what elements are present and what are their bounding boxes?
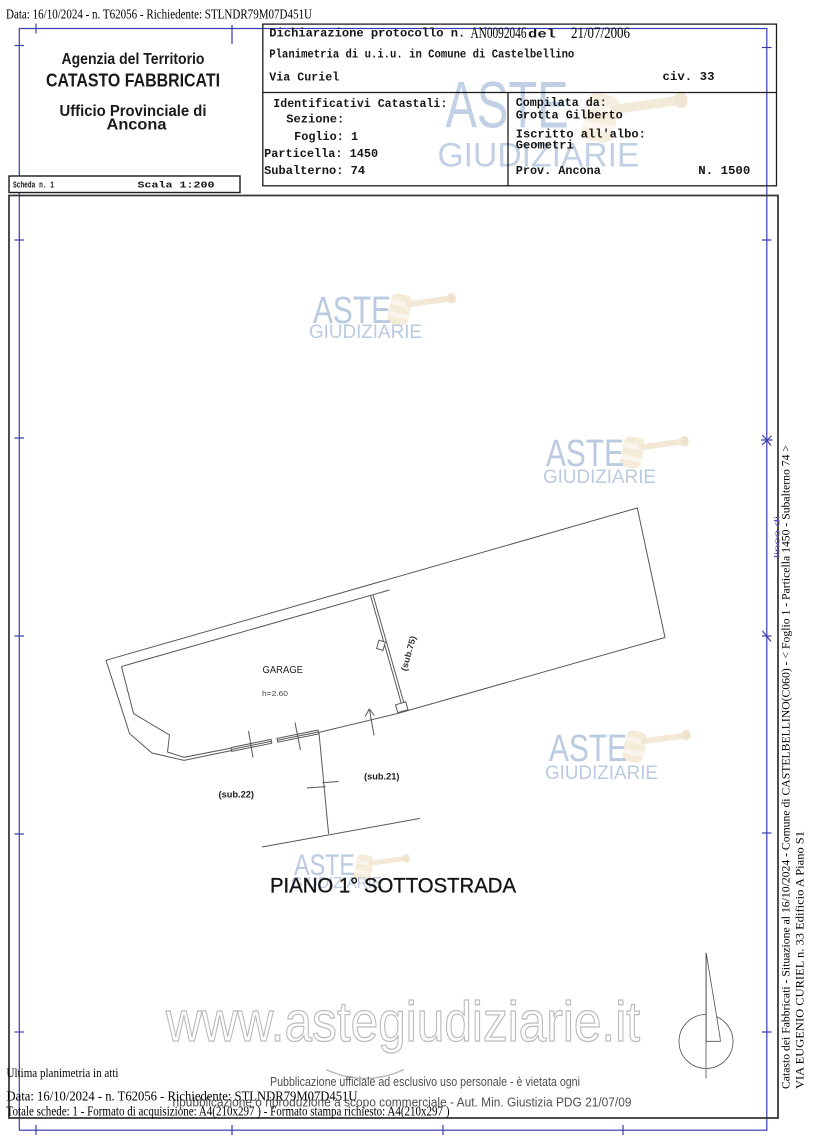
svg-text:Data: 16/10/2024 - n. T62056 -: Data: 16/10/2024 - n. T62056 - Richieden… [6,7,312,22]
svg-text:Identificativi Catastali:: Identificativi Catastali: [273,97,447,111]
svg-text:Pubblicazione ufficiale ad esc: Pubblicazione ufficiale ad esclusivo uso… [270,1075,580,1089]
svg-text:GIUDIZIARIE: GIUDIZIARIE [545,762,658,784]
svg-text:N. 1500: N. 1500 [698,164,750,178]
svg-text:GIUDIZIARIE: GIUDIZIARIE [438,137,640,175]
svg-text:h=2.60: h=2.60 [262,689,288,698]
svg-text:Scala 1:200: Scala 1:200 [138,180,215,191]
svg-text:ASTE: ASTE [446,68,569,142]
svg-text:del: del [528,28,556,42]
svg-text:Via Curiel: Via Curiel [269,71,339,85]
svg-text:Data: 16/10/2024 - n. T62056 -: Data: 16/10/2024 - n. T62056 - Richieden… [7,1090,358,1105]
svg-text:VIA EUGENIO CURIEL n. 33 Edif: VIA EUGENIO CURIEL n. 33 Edificio A Pian… [793,831,807,1089]
svg-text:CATASTO FABBRICATI: CATASTO FABBRICATI [46,70,220,91]
svg-text:Subalterno: 74: Subalterno: 74 [264,164,365,178]
svg-text:Ancona: Ancona [107,117,167,134]
svg-text:21/07/2006: 21/07/2006 [571,25,630,42]
svg-text:Particella: 1450: Particella: 1450 [264,147,378,161]
svg-text:GIUDIZIARIE: GIUDIZIARIE [543,466,656,488]
svg-text:PIANO 1° SOTTOSTRADA: PIANO 1° SOTTOSTRADA [270,875,516,898]
svg-text:(sub.21): (sub.21) [364,771,400,781]
svg-text:Totale schede: 1 - Formato di: Totale schede: 1 - Formato di acquisizio… [7,1104,450,1119]
svg-text:Foglio: 1: Foglio: 1 [294,130,358,144]
svg-text:civ. 33: civ. 33 [663,70,715,84]
svg-text:Planimetria di u.i.u. in Comun: Planimetria di u.i.u. in Comune di Caste… [269,48,574,62]
svg-text:lineo di: lineo di [775,515,782,558]
svg-text:AN0092046: AN0092046 [471,25,527,42]
svg-text:Ultima planimetria in atti: Ultima planimetria in atti [7,1066,119,1080]
svg-text:(sub.22): (sub.22) [219,789,255,799]
svg-text:GARAGE: GARAGE [263,665,304,676]
svg-text:Scheda n. 1: Scheda n. 1 [13,180,54,191]
svg-text:www.astegiudiziarie.it: www.astegiudiziarie.it [165,990,640,1054]
svg-text:Agenzia del Territorio: Agenzia del Territorio [62,51,205,68]
svg-text:GIUDIZIARIE: GIUDIZIARIE [309,321,422,343]
svg-text:Sezione:: Sezione: [286,113,344,127]
svg-text:Dichiarazione protocollo n.: Dichiarazione protocollo n. [269,27,465,41]
